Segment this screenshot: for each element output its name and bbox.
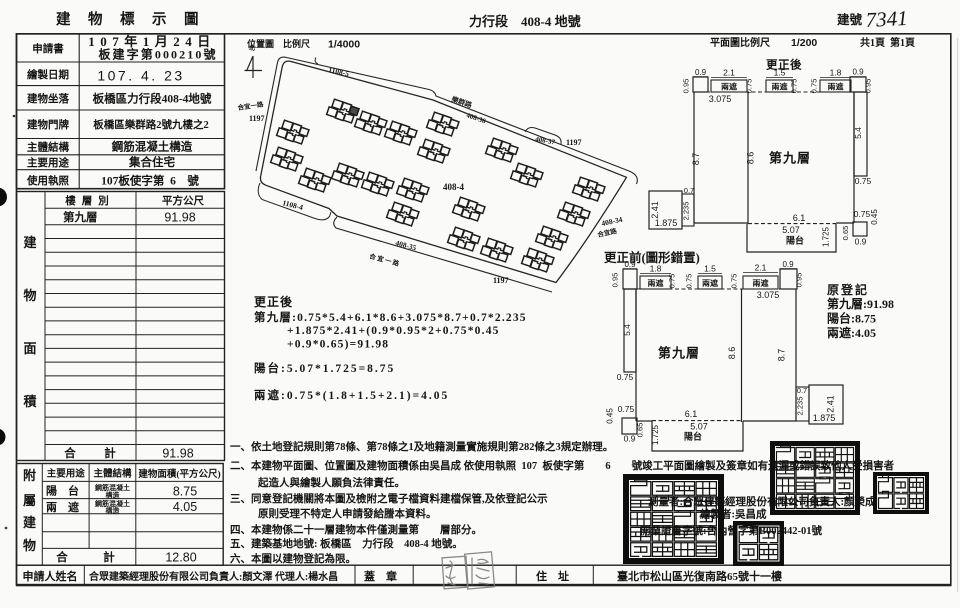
svg-text:8.6: 8.6 <box>746 152 756 165</box>
svg-text:建物標示圖: 建物標示圖 <box>56 10 216 28</box>
svg-text:合: 合 <box>56 550 68 564</box>
svg-text:平面圖: 平面圖 <box>710 37 740 49</box>
svg-text:兩遮: 兩遮 <box>772 82 788 92</box>
svg-text:板橋區樂群路2號九樓之2: 板橋區樂群路2號九樓之2 <box>93 118 209 131</box>
svg-text:1197: 1197 <box>493 276 509 285</box>
svg-text:構造: 構造 <box>106 491 121 500</box>
svg-text:臺北市松山區光復南路65號十一樓: 臺北市松山區光復南路65號十一樓 <box>617 569 782 583</box>
svg-text:1.725: 1.725 <box>822 226 831 247</box>
svg-text:1.5: 1.5 <box>704 264 716 274</box>
svg-text:8.75: 8.75 <box>173 485 197 499</box>
svg-text:合: 合 <box>64 446 76 460</box>
svg-text:五、建築基地地號: 板橋區 力行段 408-4 地號。: 五、建築基地地號: 板橋區 力行段 408-4 地號。 <box>230 537 463 550</box>
svg-text:主要用途: 主要用途 <box>27 156 69 169</box>
svg-text:附: 附 <box>23 468 36 483</box>
svg-text:0.65: 0.65 <box>636 423 645 438</box>
svg-text:107. 4. 23: 107. 4. 23 <box>97 68 184 84</box>
svg-text:91.98: 91.98 <box>162 447 193 461</box>
svg-text:板橋區力行段408-4地號: 板橋區力行段408-4地號 <box>93 92 212 106</box>
svg-text:1/4000: 1/4000 <box>328 39 360 51</box>
svg-text:兩遮:0.75*(1.8+1.5+2.1)=4.05: 兩遮:0.75*(1.8+1.5+2.1)=4.05 <box>254 388 449 402</box>
svg-text:主體結構: 主體結構 <box>93 468 132 480</box>
svg-text:0.7: 0.7 <box>684 186 694 195</box>
svg-text:6.1: 6.1 <box>793 213 806 223</box>
svg-text:91.98: 91.98 <box>164 211 195 225</box>
svg-text:1.875: 1.875 <box>655 218 678 228</box>
svg-text:第九層:91.98: 第九層:91.98 <box>827 296 894 311</box>
svg-text:集合住宅: 集合住宅 <box>128 155 175 169</box>
svg-text:2.235: 2.235 <box>682 202 691 221</box>
svg-text:0.9: 0.9 <box>852 68 864 77</box>
svg-text:0.9: 0.9 <box>695 68 707 77</box>
svg-text:共1頁: 共1頁 <box>860 36 885 49</box>
svg-text:0.9: 0.9 <box>782 260 794 269</box>
svg-text:0.45: 0.45 <box>870 209 879 225</box>
svg-text:+1.875*2.41+(0.9*0.95*2+0.75*0: +1.875*2.41+(0.9*0.95*2+0.75*0.45 <box>287 325 500 337</box>
svg-text:0.75: 0.75 <box>745 79 754 94</box>
svg-text:第九層: 第九層 <box>769 151 811 166</box>
svg-text:1.5: 1.5 <box>774 68 786 78</box>
svg-text:0.9: 0.9 <box>624 434 636 444</box>
svg-text:陽台: 陽台 <box>684 431 702 442</box>
svg-text:建: 建 <box>23 515 36 530</box>
svg-text:0.9: 0.9 <box>855 237 867 247</box>
svg-text:樓層別: 樓層別 <box>65 194 115 207</box>
svg-text:合眾建築經理股份有限公司負責人:顏文澤 代理人:楊水昌: 合眾建築經理股份有限公司負責人:顏文澤 代理人:楊水昌 <box>88 570 338 583</box>
svg-text:1.875: 1.875 <box>813 413 836 423</box>
svg-text:7341: 7341 <box>865 6 908 32</box>
svg-text:0.45: 0.45 <box>606 408 615 424</box>
svg-text:面: 面 <box>23 341 36 356</box>
svg-text:建: 建 <box>23 235 36 250</box>
svg-text:建物門牌: 建物門牌 <box>26 118 69 131</box>
svg-text:0.75: 0.75 <box>618 404 635 414</box>
svg-text:構造: 構造 <box>106 506 121 515</box>
svg-text:申請書: 申請書 <box>32 42 64 55</box>
svg-text:建物面積(平方公尺): 建物面積(平方公尺) <box>137 468 220 480</box>
svg-text:陽 台: 陽 台 <box>46 484 79 498</box>
svg-text:繪製者:吳昌成: 繪製者:吳昌成 <box>700 508 767 521</box>
svg-text:12.80: 12.80 <box>165 551 196 565</box>
svg-text:3.075: 3.075 <box>757 290 780 300</box>
svg-text:0.7: 0.7 <box>797 386 807 395</box>
svg-text:四、本建物係二十一層建物本件僅測量第 層部分。: 四、本建物係二十一層建物本件僅測量第 層部分。 <box>230 523 482 536</box>
svg-text:4.05: 4.05 <box>173 500 197 514</box>
svg-text:陽台:5.07*1.725=8.75: 陽台:5.07*1.725=8.75 <box>254 361 395 375</box>
svg-text:鋼筋混凝土構造: 鋼筋混凝土構造 <box>111 140 193 154</box>
svg-text:主體結構: 主體結構 <box>27 141 69 154</box>
svg-text:第九層:0.75*5.4+6.1*8.6+3.075*8.7: 第九層:0.75*5.4+6.1*8.6+3.075*8.7+0.7*2.235 <box>254 310 527 324</box>
svg-text:建物坐落: 建物坐落 <box>26 92 69 105</box>
svg-text:0.75: 0.75 <box>617 372 634 382</box>
svg-text:主要用途: 主要用途 <box>47 468 86 480</box>
svg-text:計: 計 <box>104 446 116 460</box>
svg-text:物: 物 <box>23 538 36 553</box>
svg-text:0.75: 0.75 <box>854 209 871 219</box>
svg-text:0.95: 0.95 <box>795 273 804 288</box>
svg-text:第九層: 第九層 <box>658 346 700 361</box>
svg-text:+0.9*0.65)=91.98: +0.9*0.65)=91.98 <box>287 339 389 351</box>
svg-text:力行段 408-4 地號: 力行段 408-4 地號 <box>469 14 581 29</box>
svg-text:2.41: 2.41 <box>650 201 660 219</box>
svg-text:5.07: 5.07 <box>782 225 800 235</box>
svg-text:0.75: 0.75 <box>810 79 819 94</box>
svg-text:蓋 章: 蓋 章 <box>364 569 397 583</box>
svg-text:六、本圖以建物登記為限。: 六、本圖以建物登記為限。 <box>230 552 356 565</box>
svg-text:三、同意登記機關將本圖及檢附之電子檔資料建檔保管,及依登記公: 三、同意登記機關將本圖及檢附之電子檔資料建檔保管,及依登記公示 <box>230 492 548 505</box>
svg-text:積: 積 <box>22 394 37 409</box>
svg-text:兩遮: 兩遮 <box>721 82 737 92</box>
svg-text:第1頁: 第1頁 <box>890 36 915 49</box>
svg-text:3.075: 3.075 <box>709 94 732 104</box>
svg-text:1197: 1197 <box>566 138 582 147</box>
svg-text:住 址: 住 址 <box>536 569 569 583</box>
svg-text:陽台: 陽台 <box>786 235 804 246</box>
svg-text:107板使字第 6 號: 107板使字第 6 號 <box>101 174 199 188</box>
svg-text:更正後: 更正後 <box>254 294 293 309</box>
svg-text:申請人姓名: 申請人姓名 <box>23 569 78 583</box>
svg-text:2.1: 2.1 <box>755 263 767 273</box>
svg-text:0.75: 0.75 <box>790 79 799 94</box>
svg-text:計: 計 <box>103 550 115 564</box>
svg-text:1.8: 1.8 <box>650 264 662 274</box>
svg-text:5.4: 5.4 <box>853 127 863 139</box>
svg-text:1/200: 1/200 <box>791 37 817 49</box>
svg-text:0.75: 0.75 <box>668 274 677 289</box>
svg-text:兩 遮: 兩 遮 <box>46 500 79 514</box>
svg-text:1.8: 1.8 <box>830 68 842 78</box>
svg-text:0.95: 0.95 <box>864 79 873 94</box>
svg-text:原則受理不特定人申請發給謄本資料。: 原則受理不特定人申請發給謄本資料。 <box>258 507 437 520</box>
svg-text:8.6: 8.6 <box>727 347 737 360</box>
svg-text:板建字第000210號: 板建字第000210號 <box>98 47 217 62</box>
svg-text:2.235: 2.235 <box>796 397 805 416</box>
svg-text:物: 物 <box>23 288 36 303</box>
svg-text:0.75: 0.75 <box>730 274 739 289</box>
svg-text:2.41: 2.41 <box>826 395 836 413</box>
svg-text:0.95: 0.95 <box>682 79 691 94</box>
svg-text:0.75: 0.75 <box>685 274 694 289</box>
svg-text:兩遮: 兩遮 <box>702 278 718 288</box>
svg-text:起造人與繪製人願負法律責任。: 起造人與繪製人願負法律責任。 <box>257 476 405 489</box>
svg-text:0.75: 0.75 <box>855 176 872 186</box>
svg-text:5.07: 5.07 <box>690 422 708 432</box>
svg-text:原登記: 原登記 <box>827 282 869 297</box>
svg-text:0.9: 0.9 <box>624 260 636 269</box>
svg-text:6.1: 6.1 <box>685 409 698 419</box>
svg-text:第九層: 第九層 <box>63 210 98 224</box>
svg-text:5.4: 5.4 <box>622 324 632 336</box>
svg-text:平方公尺: 平方公尺 <box>162 194 204 207</box>
svg-text:1.725: 1.725 <box>651 424 660 445</box>
svg-text:北: 北 <box>249 44 255 52</box>
svg-text:兩遮: 兩遮 <box>828 82 844 92</box>
svg-text:8.7: 8.7 <box>691 153 701 166</box>
svg-text:一、依土地登記規則第78條、第78條之1及地籍測量實施規則第: 一、依土地登記規則第78條、第78條之1及地籍測量實施規則第282條之3規定辦理… <box>230 440 613 453</box>
svg-text:兩遮: 兩遮 <box>753 278 769 288</box>
svg-text:屬: 屬 <box>23 493 36 508</box>
svg-text:8.7: 8.7 <box>777 349 787 362</box>
svg-text:比例尺: 比例尺 <box>283 38 310 49</box>
svg-text:兩遮:4.05: 兩遮:4.05 <box>827 325 876 340</box>
svg-text:繪製日期: 繪製日期 <box>27 68 69 81</box>
svg-text:比例尺: 比例尺 <box>740 36 770 49</box>
svg-text:兩遮: 兩遮 <box>648 278 664 288</box>
svg-text:1197: 1197 <box>249 114 265 123</box>
svg-text:建號: 建號 <box>837 12 863 27</box>
svg-text:0.65: 0.65 <box>841 226 850 241</box>
svg-text:使用執照: 使用執照 <box>26 174 69 187</box>
svg-text:2.1: 2.1 <box>723 68 735 78</box>
svg-text:0.95: 0.95 <box>611 273 620 288</box>
svg-text:408-4: 408-4 <box>443 182 464 192</box>
svg-text:陽台:8.75: 陽台:8.75 <box>827 311 876 326</box>
